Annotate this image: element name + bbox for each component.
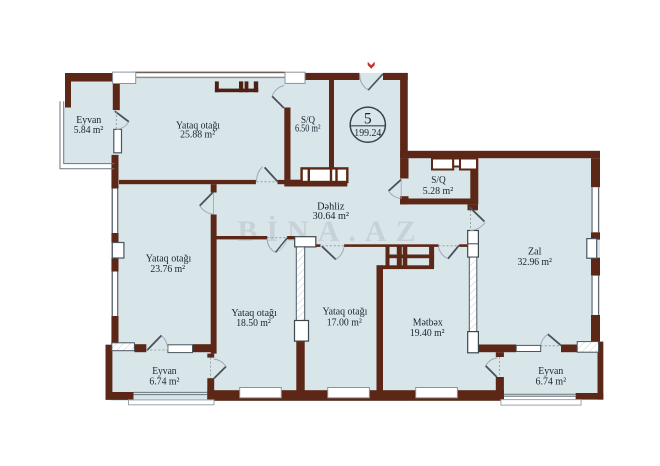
svg-text:32.96 m²: 32.96 m²	[517, 257, 552, 268]
svg-text:Yataq otağı: Yataq otağı	[322, 307, 367, 318]
svg-text:25.88 m²: 25.88 m²	[180, 130, 215, 141]
svg-text:19.40 m²: 19.40 m²	[410, 328, 445, 339]
svg-text:5.28 m²: 5.28 m²	[423, 186, 454, 197]
svg-text:S/Q: S/Q	[431, 175, 446, 186]
svg-text:Eyvan: Eyvan	[152, 366, 176, 377]
svg-text:30.64 m²: 30.64 m²	[313, 211, 349, 222]
svg-text:23.76 m²: 23.76 m²	[150, 264, 185, 275]
svg-text:18.50 m²: 18.50 m²	[236, 318, 271, 329]
svg-text:Mətbəx: Mətbəx	[413, 317, 444, 328]
svg-text:6.74 m²: 6.74 m²	[536, 377, 567, 388]
svg-text:6.74 m²: 6.74 m²	[149, 377, 179, 388]
svg-text:Zal: Zal	[528, 246, 541, 257]
svg-text:6.50 m²: 6.50 m²	[295, 124, 321, 135]
svg-text:17.00 m²: 17.00 m²	[327, 318, 362, 329]
svg-text:5: 5	[364, 111, 372, 128]
svg-text:199.24: 199.24	[354, 128, 382, 139]
svg-text:Eyvan: Eyvan	[538, 366, 563, 377]
svg-text:5.84 m²: 5.84 m²	[74, 125, 104, 136]
